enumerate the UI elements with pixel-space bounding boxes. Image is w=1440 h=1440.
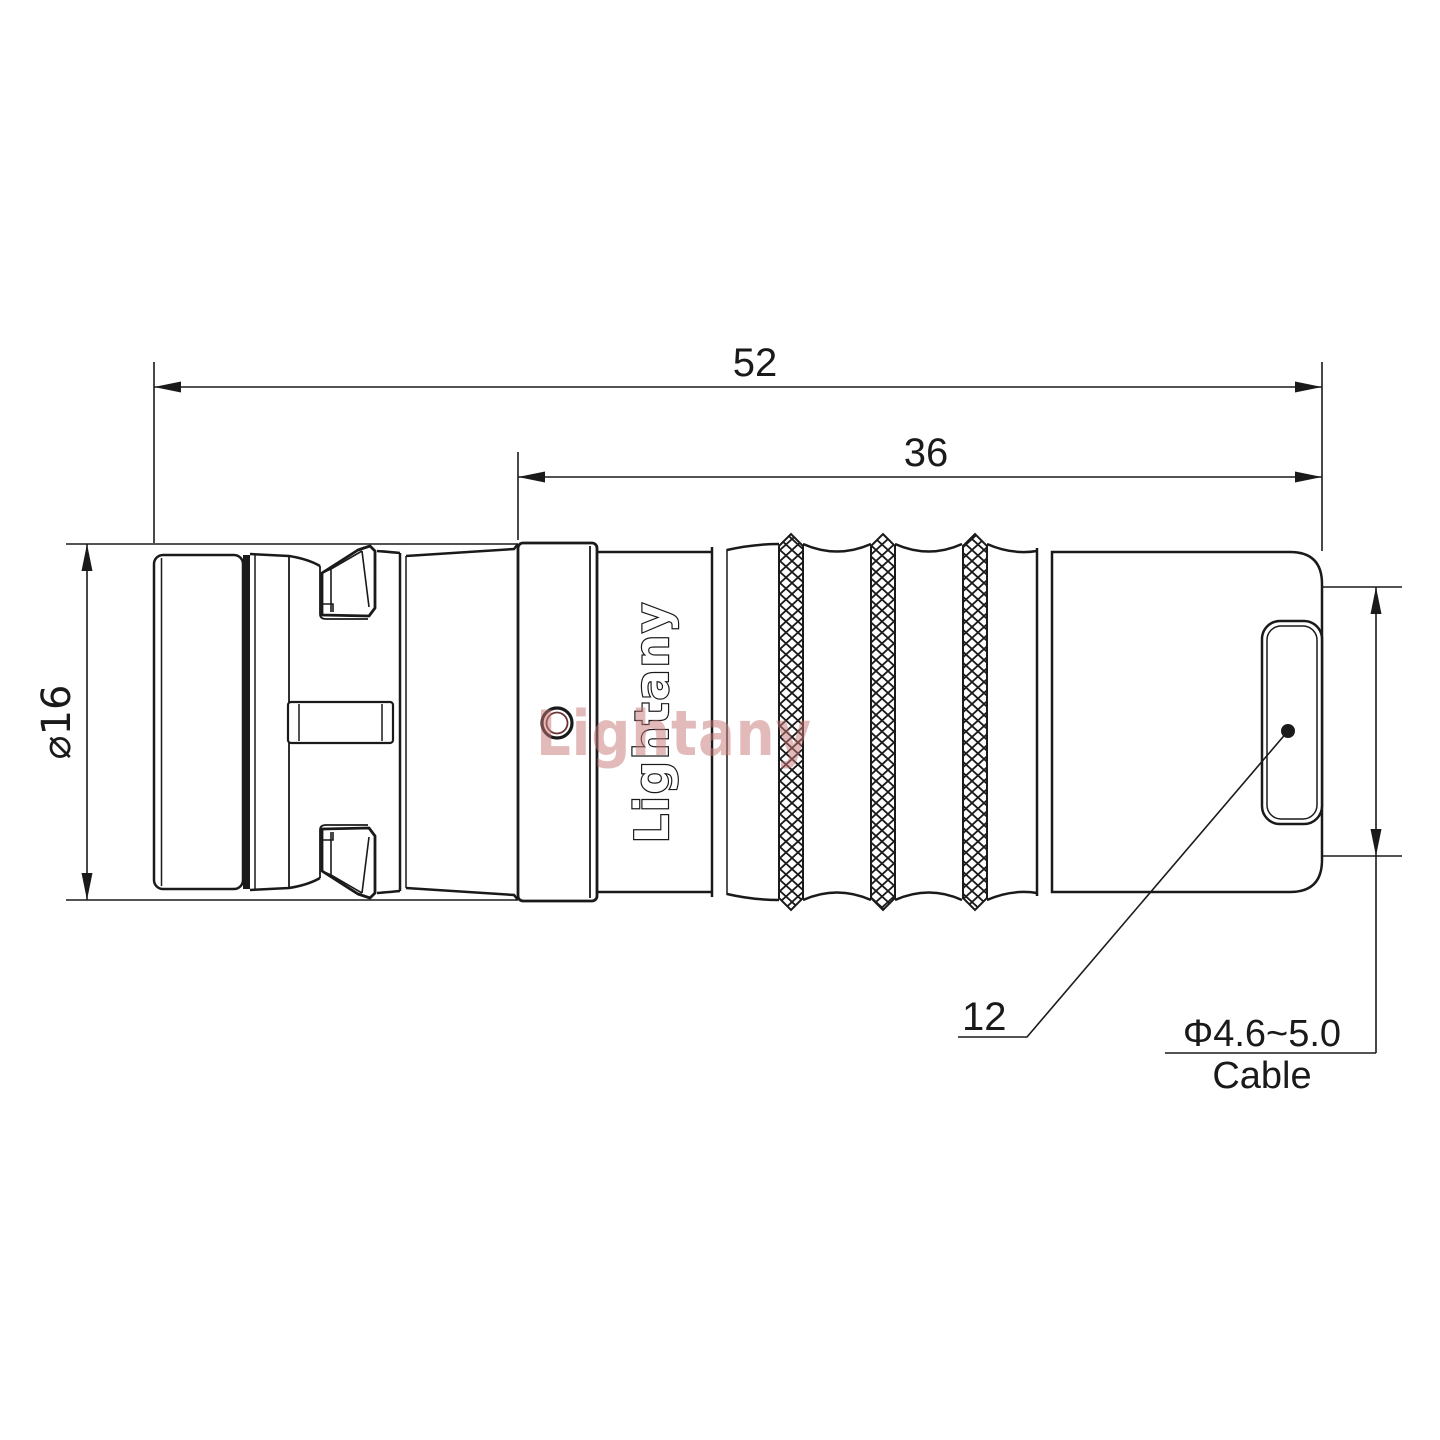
- arrowhead-right-icon: [1295, 382, 1322, 393]
- dim12-extension-ticks: [1322, 587, 1402, 856]
- taper-neck: [406, 544, 518, 900]
- bayonet-key-bottom: [322, 828, 375, 898]
- arrowhead-up-icon: [82, 544, 93, 571]
- latch-sleeve: [250, 546, 406, 898]
- arrowhead-down-icon: [1371, 829, 1382, 856]
- cable-word-label: Cable: [1212, 1055, 1311, 1097]
- arrowhead-up-icon: [1371, 587, 1382, 614]
- knurl-band: [963, 534, 987, 910]
- arrowhead-left-icon: [518, 472, 545, 483]
- bayonet-key-top-outline: [322, 546, 375, 616]
- dimension-overall-length: 52: [154, 341, 1322, 551]
- nose-shell: [154, 555, 243, 889]
- dim16-value: ⌀16: [34, 685, 80, 760]
- arrowhead-down-icon: [82, 873, 93, 900]
- sleeve-bottom-edge-left: [250, 878, 320, 890]
- arrowhead-right-icon: [1295, 472, 1322, 483]
- knurl-band: [871, 534, 895, 910]
- sleeve-top-edge-left: [250, 554, 320, 566]
- cable-boot: [1037, 548, 1322, 896]
- boot-end-cap: [1262, 621, 1322, 824]
- separation-ring: [243, 555, 250, 889]
- bayonet-key-bottom-outline: [322, 828, 375, 898]
- sleeve-top-edge-right: [377, 551, 400, 553]
- sleeve-bottom-edge-right: [377, 891, 400, 893]
- latch-slot-outline: [288, 702, 393, 743]
- connector-technical-drawing: Lightany Lightany 52: [0, 0, 1440, 1440]
- cable-callout: Φ4.6~5.0 Cable: [1165, 1013, 1376, 1097]
- dimension-shell-diameter: ⌀16: [34, 544, 93, 900]
- dimension-grip-length: 36: [518, 431, 1322, 540]
- drawing-canvas: Lightany Lightany 52: [0, 0, 1440, 1440]
- watermark-text: Lightany: [536, 697, 812, 770]
- dim36-value: 36: [904, 431, 949, 475]
- bayonet-key-top: [322, 546, 375, 616]
- dim52-value: 52: [733, 341, 778, 385]
- arrowhead-left-icon: [154, 382, 181, 393]
- dim52-extension-lines: [154, 362, 1322, 551]
- latch-slot: [288, 702, 393, 743]
- cable-range-value: Φ4.6~5.0: [1183, 1013, 1341, 1055]
- dim12-value: 12: [962, 995, 1007, 1039]
